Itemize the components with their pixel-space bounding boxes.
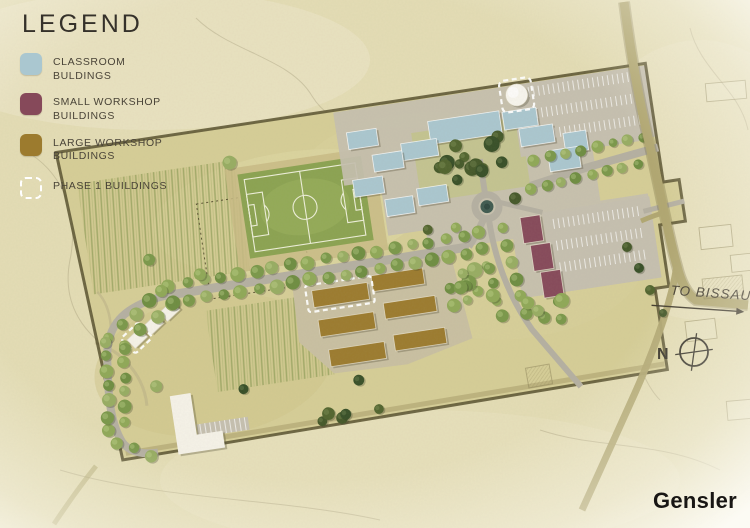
legend-swatch-classroom [20, 53, 42, 75]
legend-label-classroom: CLASSROOM BULDINGS [53, 53, 183, 83]
legend-swatch-phase1 [20, 177, 42, 199]
legend-item-classroom: CLASSROOM BULDINGS [20, 53, 220, 83]
legend-label-phase1: PHASE 1 BUILDINGS [53, 177, 167, 194]
legend-swatch-large-workshop [20, 134, 42, 156]
legend-title: LEGEND [22, 10, 220, 39]
site-plan-page: { "legend": { "title": "LEGEND", "items"… [0, 0, 750, 528]
legend-label-large-workshop: LARGE WORKSHOP BUILDINGS [53, 134, 183, 164]
gensler-logo: Gensler [653, 488, 737, 514]
legend-item-small-workshop: SMALL WORKSHOP BUILDINGS [20, 93, 220, 123]
legend-items: CLASSROOM BULDINGSSMALL WORKSHOP BUILDIN… [20, 53, 220, 199]
legend-swatch-small-workshop [20, 93, 42, 115]
legend-item-large-workshop: LARGE WORKSHOP BUILDINGS [20, 134, 220, 164]
legend: LEGEND CLASSROOM BULDINGSSMALL WORKSHOP … [20, 10, 220, 209]
legend-item-phase1: PHASE 1 BUILDINGS [20, 177, 220, 199]
legend-label-small-workshop: SMALL WORKSHOP BUILDINGS [53, 93, 183, 123]
